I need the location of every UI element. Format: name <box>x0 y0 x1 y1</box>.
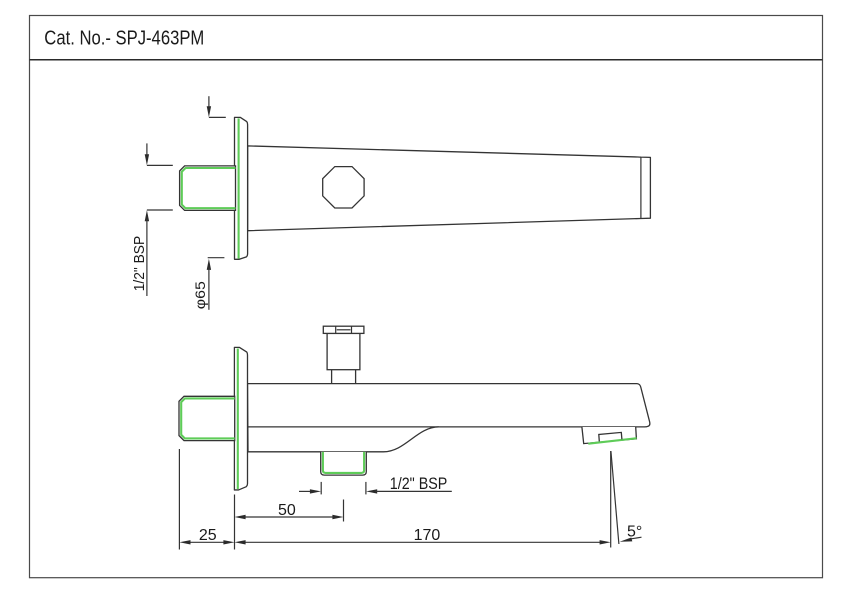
svg-text:1/2" BSP: 1/2" BSP <box>132 236 148 292</box>
svg-text:170: 170 <box>414 527 441 544</box>
svg-text:φ65: φ65 <box>192 281 208 309</box>
svg-text:5°: 5° <box>627 523 642 540</box>
svg-text:25: 25 <box>199 527 217 544</box>
svg-text:Cat. No.- SPJ-463PM: Cat. No.- SPJ-463PM <box>44 28 204 50</box>
svg-text:1/2" BSP: 1/2" BSP <box>390 474 448 493</box>
svg-text:50: 50 <box>278 502 296 519</box>
